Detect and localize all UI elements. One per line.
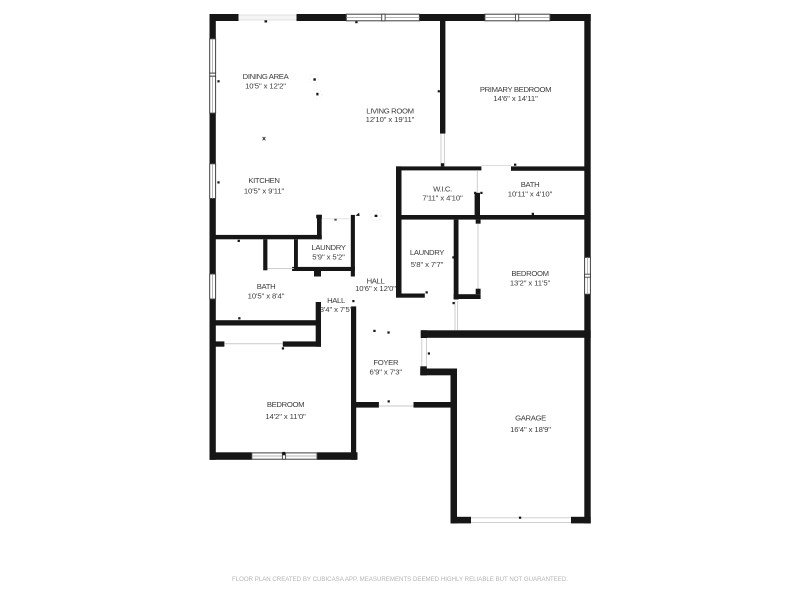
svg-text:13'2" x 11'5": 13'2" x 11'5"	[510, 278, 551, 287]
svg-text:BEDROOM: BEDROOM	[511, 269, 548, 278]
svg-text:14'2" x 11'0": 14'2" x 11'0"	[265, 412, 306, 421]
svg-text:PRIMARY BEDROOM: PRIMARY BEDROOM	[480, 85, 551, 94]
svg-text:DINING AREA: DINING AREA	[243, 72, 290, 81]
svg-text:3'4" x 7'5": 3'4" x 7'5"	[320, 305, 353, 314]
svg-text:6'9" x 7'3": 6'9" x 7'3"	[370, 368, 403, 377]
svg-text:LAUNDRY: LAUNDRY	[311, 243, 345, 252]
svg-text:FOYER: FOYER	[373, 358, 399, 367]
svg-text:BATH: BATH	[257, 282, 276, 291]
svg-text:10'11" x 4'10": 10'11" x 4'10"	[508, 189, 553, 198]
svg-text:16'4" x 18'9": 16'4" x 18'9"	[510, 425, 551, 434]
svg-text:5'8" x 7'7": 5'8" x 7'7"	[411, 260, 444, 269]
svg-text:FLOOR PLAN CREATED BY CUBICASA: FLOOR PLAN CREATED BY CUBICASA APP. MEAS…	[232, 576, 568, 583]
svg-text:LIVING ROOM: LIVING ROOM	[366, 106, 413, 115]
svg-text:10'5" x 8'4": 10'5" x 8'4"	[248, 291, 285, 300]
svg-text:BEDROOM: BEDROOM	[267, 400, 304, 409]
svg-text:W.I.C.: W.I.C.	[433, 184, 452, 193]
svg-text:BATH: BATH	[521, 180, 540, 189]
svg-text:14'6" x 14'11": 14'6" x 14'11"	[493, 94, 538, 103]
svg-text:5'9" x 5'2": 5'9" x 5'2"	[312, 252, 345, 261]
svg-text:KITCHEN: KITCHEN	[248, 176, 279, 185]
svg-text:7'11" x 4'10": 7'11" x 4'10"	[422, 194, 463, 203]
svg-text:10'5" x 12'2": 10'5" x 12'2"	[245, 81, 286, 90]
svg-text:10'5" x 9'11": 10'5" x 9'11"	[244, 186, 285, 195]
svg-text:LAUNDRY: LAUNDRY	[410, 248, 444, 257]
svg-text:12'10" x 19'11": 12'10" x 19'11"	[366, 115, 415, 124]
svg-text:10'6" x 12'0": 10'6" x 12'0"	[355, 284, 396, 293]
svg-text:GARAGE: GARAGE	[515, 413, 546, 422]
